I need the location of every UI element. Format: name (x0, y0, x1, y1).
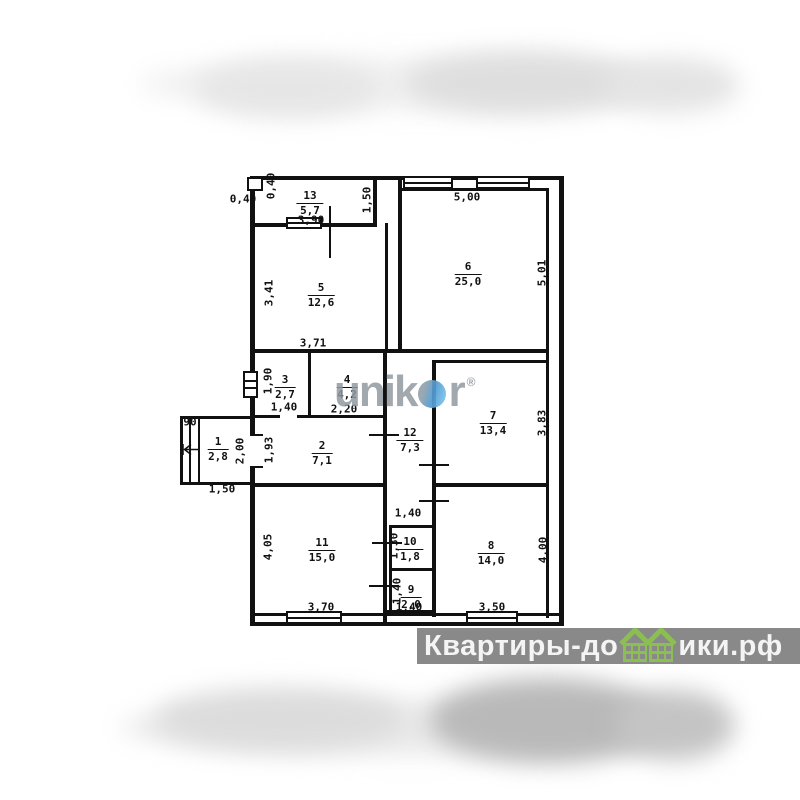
room-area: 7,1 (312, 454, 333, 467)
dimension-label: 4,05 (262, 534, 275, 561)
wall (385, 223, 388, 352)
site-watermark-suffix: ики.рф (678, 630, 782, 663)
wall (398, 176, 402, 352)
dimension-label: 0,40 (230, 193, 257, 206)
dimension-label: 1,50 (209, 483, 236, 496)
door-mark (369, 434, 399, 436)
unikor-lens-icon (418, 380, 446, 408)
room-number: 5 (308, 282, 335, 296)
window (403, 176, 453, 189)
door-mark (329, 206, 331, 258)
dimension-label: 2,00 (234, 438, 247, 465)
room-label-1: 12,8 (208, 436, 229, 462)
dimension-label: 1,40 (271, 401, 298, 414)
dimension-label: 3,90 (298, 214, 325, 227)
wall (250, 415, 280, 418)
entrance-arrow-icon (181, 443, 201, 456)
dimension-label: 90 (183, 416, 196, 429)
window (243, 371, 258, 398)
chimney-box (247, 177, 263, 191)
page: 135,7512,6625,032,744,2713,412,827,1127,… (0, 0, 800, 800)
window (476, 176, 530, 189)
door-mark (419, 464, 449, 466)
dimension-label: 1,93 (263, 437, 276, 464)
dimension-label: 1,90 (262, 368, 275, 395)
room-number: 8 (478, 540, 505, 554)
door-mark (250, 466, 263, 468)
room-label-8: 814,0 (478, 540, 505, 566)
dimension-label: 4,00 (537, 537, 550, 564)
wall (250, 349, 549, 353)
room-number: 13 (296, 190, 323, 204)
room-label-7: 713,4 (480, 410, 507, 436)
dimension-label: 1,40 (395, 507, 422, 520)
room-number: 1 (208, 436, 229, 450)
door-opening (249, 436, 256, 466)
room-number: 2 (312, 440, 333, 454)
dimension-label: 5,01 (536, 260, 549, 287)
unikor-text-left: unik (334, 370, 416, 414)
room-label-12: 127,3 (396, 427, 423, 453)
dimension-label: 3,50 (479, 601, 506, 614)
room-area: 25,0 (455, 275, 482, 288)
room-label-6: 625,0 (455, 261, 482, 287)
room-label-3: 32,7 (275, 374, 296, 400)
wall (250, 483, 387, 487)
room-area: 14,0 (478, 554, 505, 567)
wall (389, 568, 435, 571)
unikor-watermark: unik r ® (334, 370, 475, 414)
wall (389, 525, 435, 528)
dimension-label: 0,40 (265, 173, 278, 200)
room-label-13: 135,7 (296, 190, 323, 216)
room-number: 3 (275, 374, 296, 388)
room-number: 9 (401, 584, 422, 598)
room-area: 2,8 (208, 450, 229, 463)
dimension-label: 1,40 (396, 601, 423, 614)
room-number: 6 (455, 261, 482, 275)
unikor-text-right: r (448, 370, 463, 414)
door-mark (250, 434, 263, 436)
room-area: 15,0 (308, 551, 335, 564)
dimension-label: 3,41 (263, 280, 276, 307)
room-area: 13,4 (480, 424, 507, 437)
wall (373, 176, 377, 227)
dimension-label: 1,50 (361, 187, 374, 214)
room-number: 7 (480, 410, 507, 424)
wall (435, 360, 548, 363)
room-area: 2,7 (275, 388, 296, 401)
room-label-5: 512,6 (308, 282, 335, 308)
dimension-label: 1,30 (388, 533, 401, 560)
dimension-label: 3,70 (308, 601, 335, 614)
door-mark (419, 500, 449, 502)
room-number: 12 (396, 427, 423, 441)
wall (559, 176, 564, 626)
wall (308, 352, 311, 417)
room-label-11: 1115,0 (308, 537, 335, 563)
wall (435, 483, 548, 487)
room-number: 11 (308, 537, 335, 551)
site-watermark-prefix: Квартиры-до (424, 630, 618, 663)
dimension-label: 5,00 (454, 191, 481, 204)
houses-icon (619, 628, 677, 662)
room-area: 7,3 (396, 441, 423, 454)
registered-mark: ® (467, 376, 476, 388)
dimension-label: 3,83 (536, 410, 549, 437)
room-area: 12,6 (308, 296, 335, 309)
site-watermark-bar: Квартиры-до ики.рф (417, 628, 800, 664)
room-label-2: 27,1 (312, 440, 333, 466)
wall (250, 176, 255, 626)
dimension-label: 3,71 (300, 337, 327, 350)
